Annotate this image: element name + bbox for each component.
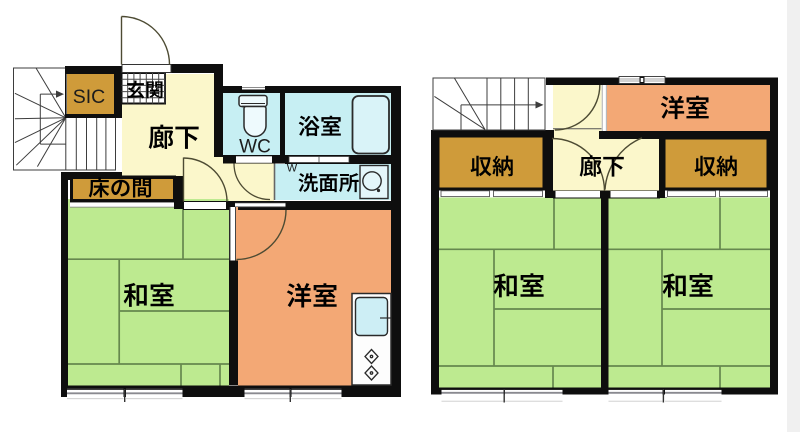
svg-text:W: W bbox=[287, 163, 298, 175]
svg-text:SIC: SIC bbox=[73, 86, 106, 108]
svg-text:WC: WC bbox=[239, 137, 271, 158]
